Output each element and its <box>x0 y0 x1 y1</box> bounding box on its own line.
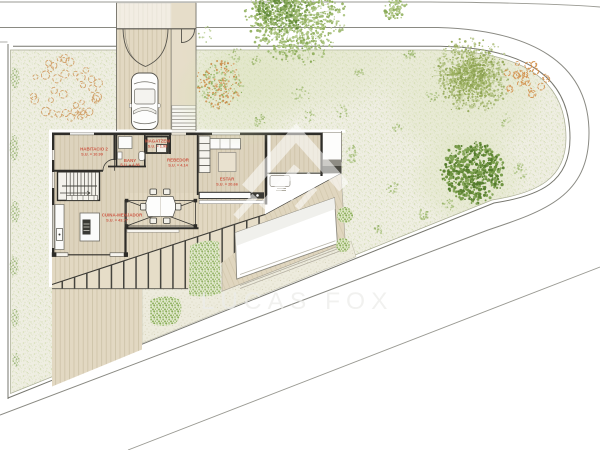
svg-text:S.U. = 20.66: S.U. = 20.66 <box>216 181 239 186</box>
svg-text:LUCAS FOX: LUCAS FOX <box>201 288 394 315</box>
svg-text:S.U. = 43.77: S.U. = 43.77 <box>106 218 128 223</box>
svg-text:S.U. = 4.14: S.U. = 4.14 <box>168 162 188 167</box>
svg-text:S.U. = 1.99: S.U. = 1.99 <box>148 143 168 148</box>
svg-text:S.U. = 10.99: S.U. = 10.99 <box>81 152 104 157</box>
svg-text:S.U. = 4.86: S.U. = 4.86 <box>120 162 140 167</box>
